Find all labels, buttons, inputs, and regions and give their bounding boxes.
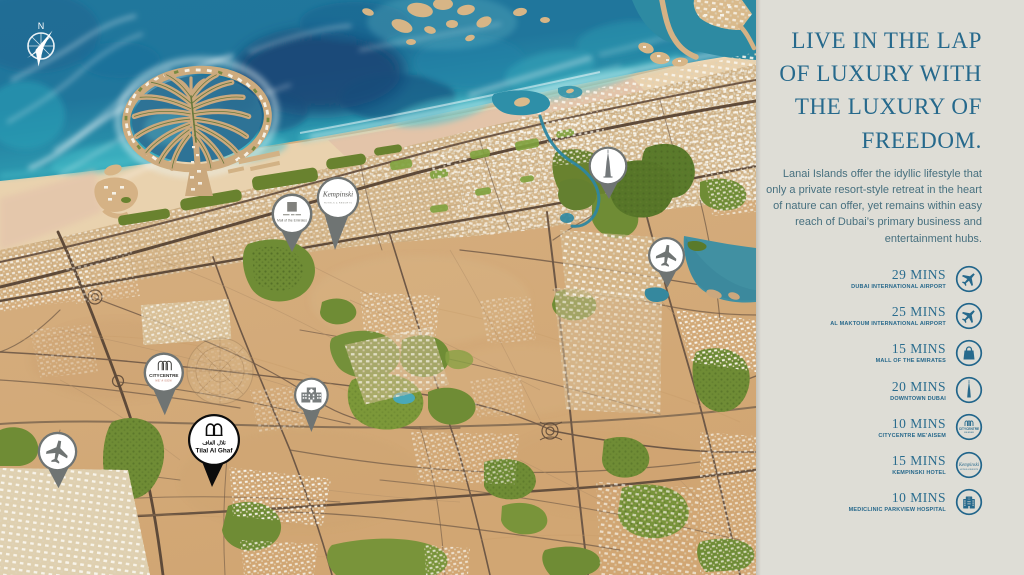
svg-text:ME’AISEM: ME’AISEM (155, 380, 172, 383)
svg-text:Kempinski: Kempinski (958, 463, 980, 468)
svg-text:Kempinski: Kempinski (322, 191, 353, 199)
svg-text:N: N (38, 21, 45, 31)
svg-text:HOTELS & RESORTS: HOTELS & RESORTS (324, 203, 353, 205)
svg-text:Tilal Al Ghaf: Tilal Al Ghaf (196, 448, 234, 455)
svg-text:ME’AISEM: ME’AISEM (964, 431, 974, 434)
svg-text:CITYCENTRE: CITYCENTRE (149, 373, 178, 378)
svg-text:Mall of the Emirates: Mall of the Emirates (277, 219, 307, 223)
svg-text:CITYCENTRE: CITYCENTRE (959, 427, 979, 431)
svg-text:HOTELS & RESORTS: HOTELS & RESORTS (960, 469, 979, 471)
svg-text:تلال الغاف: تلال الغاف (202, 440, 226, 447)
